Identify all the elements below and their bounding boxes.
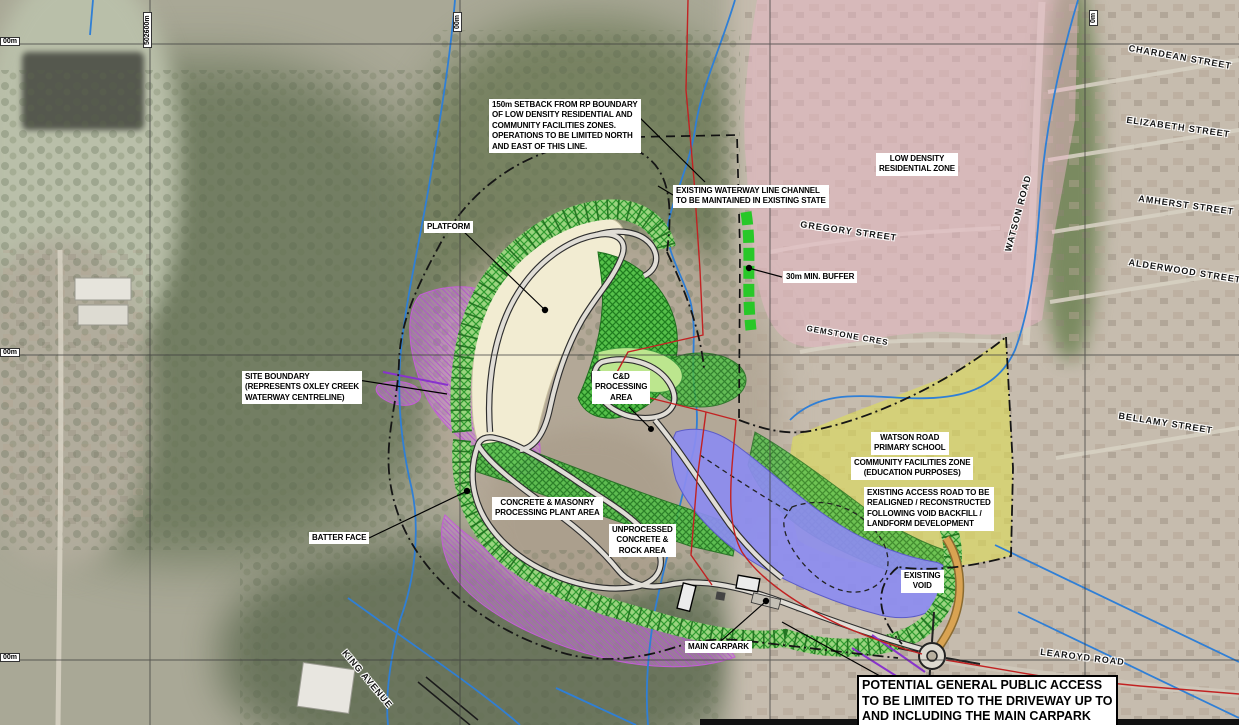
label-main-carpark: MAIN CARPARK xyxy=(685,641,752,653)
label-30m-buffer: 30m MIN. BUFFER xyxy=(783,271,857,283)
label-batter-face: BATTER FACE xyxy=(309,532,369,544)
label-unprocessed: UNPROCESSED CONCRETE & ROCK AREA xyxy=(609,524,676,557)
site-plan-map[interactable]: 150m SETBACK FROM RP BOUNDARY OF LOW DEN… xyxy=(0,0,1239,725)
label-public-access: POTENTIAL GENERAL PUBLIC ACCESS TO BE LI… xyxy=(857,675,1118,725)
label-concrete-masonry: CONCRETE & MASONRY PROCESSING PLANT AREA xyxy=(492,497,603,520)
label-platform: PLATFORM xyxy=(424,221,473,233)
label-watson-school: WATSON ROAD PRIMARY SCHOOL xyxy=(871,432,949,455)
grid-label-left-3: 00m xyxy=(0,653,20,662)
grid-label-top-1: 502600m xyxy=(143,12,152,48)
label-community-facilities: COMMUNITY FACILITIES ZONE (EDUCATION PUR… xyxy=(851,457,973,480)
label-cd-processing: C&D PROCESSING AREA xyxy=(592,371,650,404)
label-low-density-zone: LOW DENSITY RESIDENTIAL ZONE xyxy=(876,153,958,176)
label-existing-waterway: EXISTING WATERWAY LINE CHANNEL TO BE MAI… xyxy=(673,185,829,208)
grid-label-top-2: 00m xyxy=(453,12,462,32)
grid-label-top-3: 0m xyxy=(1089,10,1098,26)
grid-label-left-2: 00m xyxy=(0,348,20,357)
label-site-boundary: SITE BOUNDARY (REPRESENTS OXLEY CREEK WA… xyxy=(242,371,362,404)
label-existing-void: EXISTING VOID xyxy=(901,570,944,593)
label-150m-setback: 150m SETBACK FROM RP BOUNDARY OF LOW DEN… xyxy=(489,99,641,153)
grid-label-left-1: 00m xyxy=(0,37,20,46)
label-access-road: EXISTING ACCESS ROAD TO BE REALIGNED / R… xyxy=(864,487,994,531)
